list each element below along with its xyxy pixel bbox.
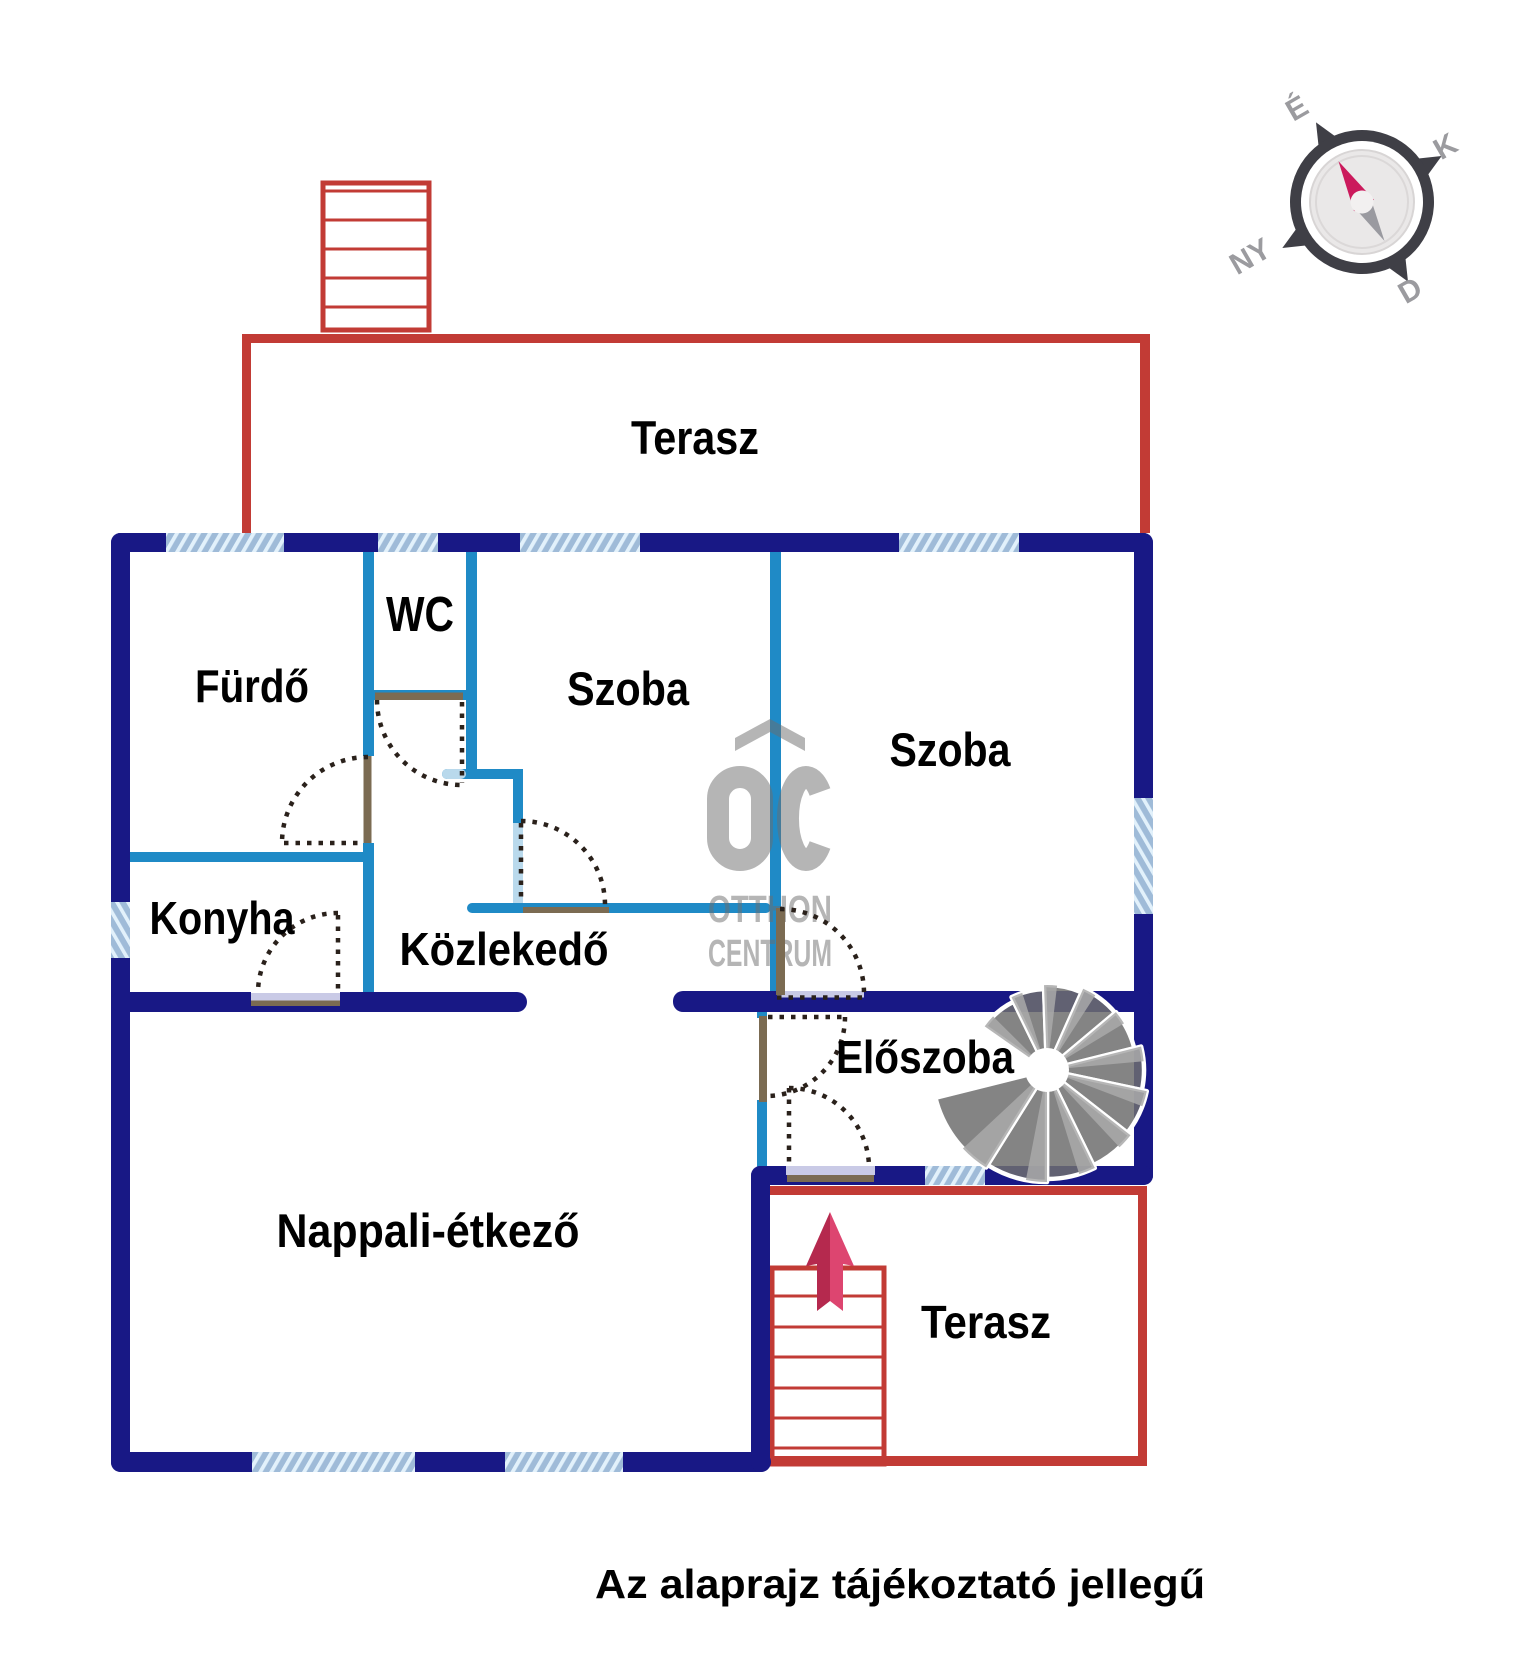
svg-text:Szoba: Szoba	[890, 723, 1012, 776]
svg-text:Terasz: Terasz	[921, 1296, 1051, 1348]
svg-text:Közlekedő: Közlekedő	[400, 923, 609, 975]
svg-text:WC: WC	[386, 588, 454, 642]
svg-text:OTTHON: OTTHON	[708, 889, 832, 931]
svg-text:Szoba: Szoba	[567, 662, 690, 715]
svg-text:Nappali-étkező: Nappali-étkező	[277, 1204, 580, 1257]
svg-text:Fürdő: Fürdő	[195, 660, 309, 712]
svg-text:Terasz: Terasz	[631, 411, 759, 464]
svg-text:CENTRUM: CENTRUM	[708, 933, 832, 975]
svg-text:Az alaprajz tájékoztató jelleg: Az alaprajz tájékoztató jellegű	[595, 1561, 1205, 1607]
svg-text:Előszoba: Előszoba	[836, 1031, 1014, 1083]
svg-text:Konyha: Konyha	[150, 892, 295, 944]
